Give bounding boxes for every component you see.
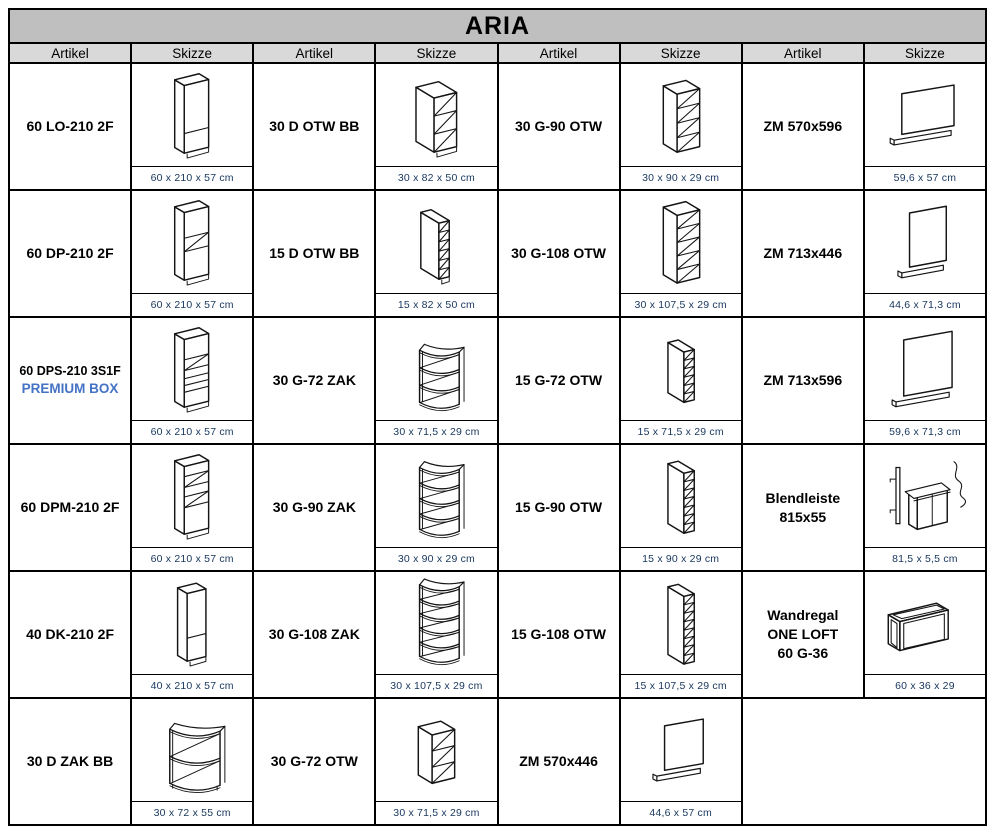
artikel-label: 15 G-108 OTW bbox=[511, 625, 606, 644]
cabinet-sketch bbox=[132, 572, 252, 674]
dimension-strip: 15 x 71,5 x 29 cm bbox=[621, 420, 741, 443]
empty-cell bbox=[742, 698, 986, 825]
artikel-label: 30 G-108 OTW bbox=[511, 244, 606, 263]
artikel-label: 30 G-108 ZAK bbox=[269, 625, 360, 644]
sketch-otw-4 bbox=[623, 69, 739, 162]
skizze-cell: 44,6 x 71,3 cm bbox=[864, 190, 986, 317]
skizze-cell: 81,5 x 5,5 cm bbox=[864, 444, 986, 571]
skizze-cell: 60 x 210 x 57 cm bbox=[131, 190, 253, 317]
artikel-cell: 60 DPS-210 3S1F PREMIUM BOX bbox=[9, 317, 131, 444]
dimension-strip: 15 x 90 x 29 cm bbox=[621, 547, 741, 570]
dimension-label: 59,6 x 71,3 cm bbox=[889, 426, 961, 438]
column-header-skizze: Skizze bbox=[864, 43, 986, 63]
page-title: ARIA bbox=[9, 9, 986, 43]
skizze-cell: 60 x 210 x 57 cm bbox=[131, 317, 253, 444]
dimension-label: 44,6 x 71,3 cm bbox=[889, 299, 961, 311]
dimension-strip: 60 x 210 x 57 cm bbox=[132, 547, 252, 570]
cabinet-sketch bbox=[376, 191, 496, 293]
cabinet-sketch bbox=[376, 699, 496, 801]
column-header-skizze: Skizze bbox=[131, 43, 253, 63]
sketch-panel-t bbox=[867, 196, 983, 289]
sketch-panel-l bbox=[867, 323, 983, 416]
sketch-zak-5 bbox=[378, 450, 494, 543]
cabinet-sketch bbox=[376, 572, 496, 674]
dimension-label: 30 x 107,5 x 29 cm bbox=[390, 680, 482, 692]
skizze-cell: 15 x 107,5 x 29 cm bbox=[620, 571, 742, 698]
catalog-page: ARIA Artikel Skizze Artikel Skizze Artik… bbox=[0, 0, 993, 832]
skizze-cell: 30 x 71,5 x 29 cm bbox=[375, 698, 497, 825]
dimension-label: 30 x 82 x 50 cm bbox=[398, 172, 475, 184]
dimension-strip: 44,6 x 71,3 cm bbox=[865, 293, 985, 316]
sketch-tall-dp bbox=[134, 196, 250, 289]
cabinet-sketch bbox=[865, 445, 985, 547]
artikel-label: ZM 570x446 bbox=[519, 752, 598, 771]
sketch-otw-5 bbox=[623, 196, 739, 289]
dimension-label: 60 x 210 x 57 cm bbox=[151, 426, 234, 438]
cabinet-sketch bbox=[132, 699, 252, 801]
cabinet-sketch bbox=[865, 191, 985, 293]
dimension-strip: 60 x 210 x 57 cm bbox=[132, 293, 252, 316]
sketch-zak-6 bbox=[378, 577, 494, 670]
dimension-label: 30 x 71,5 x 29 cm bbox=[393, 807, 479, 819]
skizze-cell: 44,6 x 57 cm bbox=[620, 698, 742, 825]
dimension-label: 30 x 90 x 29 cm bbox=[642, 172, 719, 184]
skizze-cell: 30 x 71,5 x 29 cm bbox=[375, 317, 497, 444]
sketch-panel-s bbox=[623, 704, 739, 797]
artikel-label: Wandregal bbox=[767, 606, 838, 625]
skizze-cell: 30 x 90 x 29 cm bbox=[620, 63, 742, 190]
dimension-label: 30 x 72 x 55 cm bbox=[154, 807, 231, 819]
cabinet-sketch bbox=[132, 191, 252, 293]
sketch-frame bbox=[867, 577, 983, 670]
artikel-cell: 40 DK-210 2F bbox=[9, 571, 131, 698]
skizze-cell: 60 x 36 x 29 bbox=[864, 571, 986, 698]
artikel-label: 60 DPS-210 3S1F bbox=[19, 363, 120, 380]
cabinet-sketch bbox=[865, 572, 985, 674]
column-header-artikel: Artikel bbox=[742, 43, 864, 63]
artikel-label: 60 DPM-210 2F bbox=[21, 498, 120, 517]
skizze-cell: 59,6 x 71,3 cm bbox=[864, 317, 986, 444]
sketch-tall-dpm bbox=[134, 450, 250, 543]
artikel-label: 30 D ZAK BB bbox=[27, 752, 113, 771]
artikel-cell: 30 G-72 ZAK bbox=[253, 317, 375, 444]
artikel-label: 30 G-72 ZAK bbox=[273, 371, 356, 390]
artikel-cell: 15 G-90 OTW bbox=[498, 444, 620, 571]
column-header-artikel: Artikel bbox=[253, 43, 375, 63]
dimension-strip: 30 x 71,5 x 29 cm bbox=[376, 420, 496, 443]
artikel-label-line2: ONE LOFT bbox=[767, 625, 838, 644]
sketch-otw-base-15 bbox=[378, 196, 494, 289]
dimension-strip: 30 x 107,5 x 29 cm bbox=[376, 674, 496, 697]
dimension-label: 30 x 71,5 x 29 cm bbox=[393, 426, 479, 438]
dimension-label: 30 x 90 x 29 cm bbox=[398, 553, 475, 565]
dimension-strip: 30 x 90 x 29 cm bbox=[376, 547, 496, 570]
cabinet-sketch bbox=[865, 64, 985, 166]
artikel-label: 30 G-90 ZAK bbox=[273, 498, 356, 517]
artikel-cell: 60 DP-210 2F bbox=[9, 190, 131, 317]
dimension-strip: 44,6 x 57 cm bbox=[621, 801, 741, 824]
dimension-label: 15 x 71,5 x 29 cm bbox=[638, 426, 724, 438]
dimension-strip: 60 x 36 x 29 bbox=[865, 674, 985, 697]
artikel-cell: 30 D ZAK BB bbox=[9, 698, 131, 825]
sketch-otw-n7 bbox=[623, 450, 739, 543]
dimension-strip: 60 x 210 x 57 cm bbox=[132, 420, 252, 443]
artikel-label-line2: 815x55 bbox=[779, 508, 826, 527]
cabinet-sketch bbox=[621, 572, 741, 674]
artikel-cell: 30 D OTW BB bbox=[253, 63, 375, 190]
artikel-cell: ZM 713x446 bbox=[742, 190, 864, 317]
sketch-zak-base bbox=[134, 704, 250, 797]
artikel-cell: 60 LO-210 2F bbox=[9, 63, 131, 190]
dimension-strip: 15 x 82 x 50 cm bbox=[376, 293, 496, 316]
dimension-strip: 59,6 x 71,3 cm bbox=[865, 420, 985, 443]
skizze-cell: 30 x 107,5 x 29 cm bbox=[375, 571, 497, 698]
skizze-cell: 15 x 82 x 50 cm bbox=[375, 190, 497, 317]
artikel-label: 15 G-90 OTW bbox=[515, 498, 602, 517]
artikel-label: 40 DK-210 2F bbox=[26, 625, 114, 644]
cabinet-sketch bbox=[621, 699, 741, 801]
artikel-cell: 15 D OTW BB bbox=[253, 190, 375, 317]
dimension-strip: 60 x 210 x 57 cm bbox=[132, 166, 252, 189]
product-table: ARIA Artikel Skizze Artikel Skizze Artik… bbox=[8, 8, 987, 826]
sketch-blende bbox=[867, 450, 983, 543]
cabinet-sketch bbox=[132, 64, 252, 166]
dimension-strip: 59,6 x 57 cm bbox=[865, 166, 985, 189]
artikel-cell: Blendleiste 815x55 bbox=[742, 444, 864, 571]
artikel-cell: ZM 570x446 bbox=[498, 698, 620, 825]
artikel-label: ZM 713x446 bbox=[764, 244, 843, 263]
skizze-cell: 60 x 210 x 57 cm bbox=[131, 63, 253, 190]
dimension-label: 60 x 210 x 57 cm bbox=[151, 553, 234, 565]
sketch-tall-dk bbox=[134, 577, 250, 670]
skizze-cell: 59,6 x 57 cm bbox=[864, 63, 986, 190]
dimension-label: 44,6 x 57 cm bbox=[649, 807, 712, 819]
dimension-label: 81,5 x 5,5 cm bbox=[892, 553, 958, 565]
dimension-strip: 81,5 x 5,5 cm bbox=[865, 547, 985, 570]
dimension-label: 59,6 x 57 cm bbox=[894, 172, 957, 184]
dimension-strip: 40 x 210 x 57 cm bbox=[132, 674, 252, 697]
artikel-cell: ZM 713x596 bbox=[742, 317, 864, 444]
dimension-label: 15 x 90 x 29 cm bbox=[642, 553, 719, 565]
artikel-cell: Wandregal ONE LOFT 60 G-36 bbox=[742, 571, 864, 698]
column-header-artikel: Artikel bbox=[498, 43, 620, 63]
sketch-otw-n6 bbox=[623, 323, 739, 416]
artikel-cell: 30 G-72 OTW bbox=[253, 698, 375, 825]
sketch-panel-w bbox=[867, 69, 983, 162]
artikel-label: 30 G-90 OTW bbox=[515, 117, 602, 136]
artikel-cell: ZM 570x596 bbox=[742, 63, 864, 190]
artikel-label-line3: 60 G-36 bbox=[778, 644, 829, 663]
sketch-otw-n8 bbox=[623, 577, 739, 670]
artikel-cell: 15 G-72 OTW bbox=[498, 317, 620, 444]
dimension-strip: 30 x 90 x 29 cm bbox=[621, 166, 741, 189]
artikel-label: ZM 570x596 bbox=[764, 117, 843, 136]
artikel-cell: 30 G-108 ZAK bbox=[253, 571, 375, 698]
artikel-label: 15 G-72 OTW bbox=[515, 371, 602, 390]
skizze-cell: 15 x 90 x 29 cm bbox=[620, 444, 742, 571]
artikel-cell: 30 G-108 OTW bbox=[498, 190, 620, 317]
skizze-cell: 30 x 107,5 x 29 cm bbox=[620, 190, 742, 317]
dimension-strip: 15 x 107,5 x 29 cm bbox=[621, 674, 741, 697]
dimension-strip: 30 x 72 x 55 cm bbox=[132, 801, 252, 824]
artikel-cell: 30 G-90 OTW bbox=[498, 63, 620, 190]
dimension-label: 60 x 210 x 57 cm bbox=[151, 172, 234, 184]
column-header-skizze: Skizze bbox=[620, 43, 742, 63]
sketch-zak-4 bbox=[378, 323, 494, 416]
column-header-artikel: Artikel bbox=[9, 43, 131, 63]
cabinet-sketch bbox=[865, 318, 985, 420]
cabinet-sketch bbox=[621, 318, 741, 420]
artikel-premium-label: PREMIUM BOX bbox=[22, 380, 119, 398]
dimension-strip: 30 x 82 x 50 cm bbox=[376, 166, 496, 189]
cabinet-sketch bbox=[621, 191, 741, 293]
skizze-cell: 60 x 210 x 57 cm bbox=[131, 444, 253, 571]
artikel-label: 15 D OTW BB bbox=[269, 244, 359, 263]
cabinet-sketch bbox=[132, 318, 252, 420]
cabinet-sketch bbox=[132, 445, 252, 547]
artikel-cell: 30 G-90 ZAK bbox=[253, 444, 375, 571]
skizze-cell: 40 x 210 x 57 cm bbox=[131, 571, 253, 698]
cabinet-sketch bbox=[621, 64, 741, 166]
dimension-label: 60 x 36 x 29 bbox=[895, 680, 955, 692]
artikel-cell: 15 G-108 OTW bbox=[498, 571, 620, 698]
dimension-label: 60 x 210 x 57 cm bbox=[151, 299, 234, 311]
dimension-label: 40 x 210 x 57 cm bbox=[151, 680, 234, 692]
artikel-label: 30 D OTW BB bbox=[269, 117, 359, 136]
cabinet-sketch bbox=[376, 318, 496, 420]
sketch-tall-lo bbox=[134, 69, 250, 162]
skizze-cell: 15 x 71,5 x 29 cm bbox=[620, 317, 742, 444]
column-header-skizze: Skizze bbox=[375, 43, 497, 63]
artikel-label: ZM 713x596 bbox=[764, 371, 843, 390]
artikel-label: 60 LO-210 2F bbox=[26, 117, 113, 136]
dimension-strip: 30 x 71,5 x 29 cm bbox=[376, 801, 496, 824]
sketch-otw-base-30 bbox=[378, 69, 494, 162]
artikel-label: 60 DP-210 2F bbox=[26, 244, 113, 263]
cabinet-sketch bbox=[376, 64, 496, 166]
skizze-cell: 30 x 90 x 29 cm bbox=[375, 444, 497, 571]
dimension-label: 15 x 107,5 x 29 cm bbox=[635, 680, 727, 692]
artikel-cell: 60 DPM-210 2F bbox=[9, 444, 131, 571]
dimension-strip: 30 x 107,5 x 29 cm bbox=[621, 293, 741, 316]
dimension-label: 30 x 107,5 x 29 cm bbox=[635, 299, 727, 311]
artikel-label: 30 G-72 OTW bbox=[271, 752, 358, 771]
sketch-otw-3 bbox=[378, 704, 494, 797]
cabinet-sketch bbox=[376, 445, 496, 547]
artikel-label: Blendleiste bbox=[765, 489, 840, 508]
skizze-cell: 30 x 72 x 55 cm bbox=[131, 698, 253, 825]
dimension-label: 15 x 82 x 50 cm bbox=[398, 299, 475, 311]
cabinet-sketch bbox=[621, 445, 741, 547]
sketch-tall-dps bbox=[134, 323, 250, 416]
skizze-cell: 30 x 82 x 50 cm bbox=[375, 63, 497, 190]
